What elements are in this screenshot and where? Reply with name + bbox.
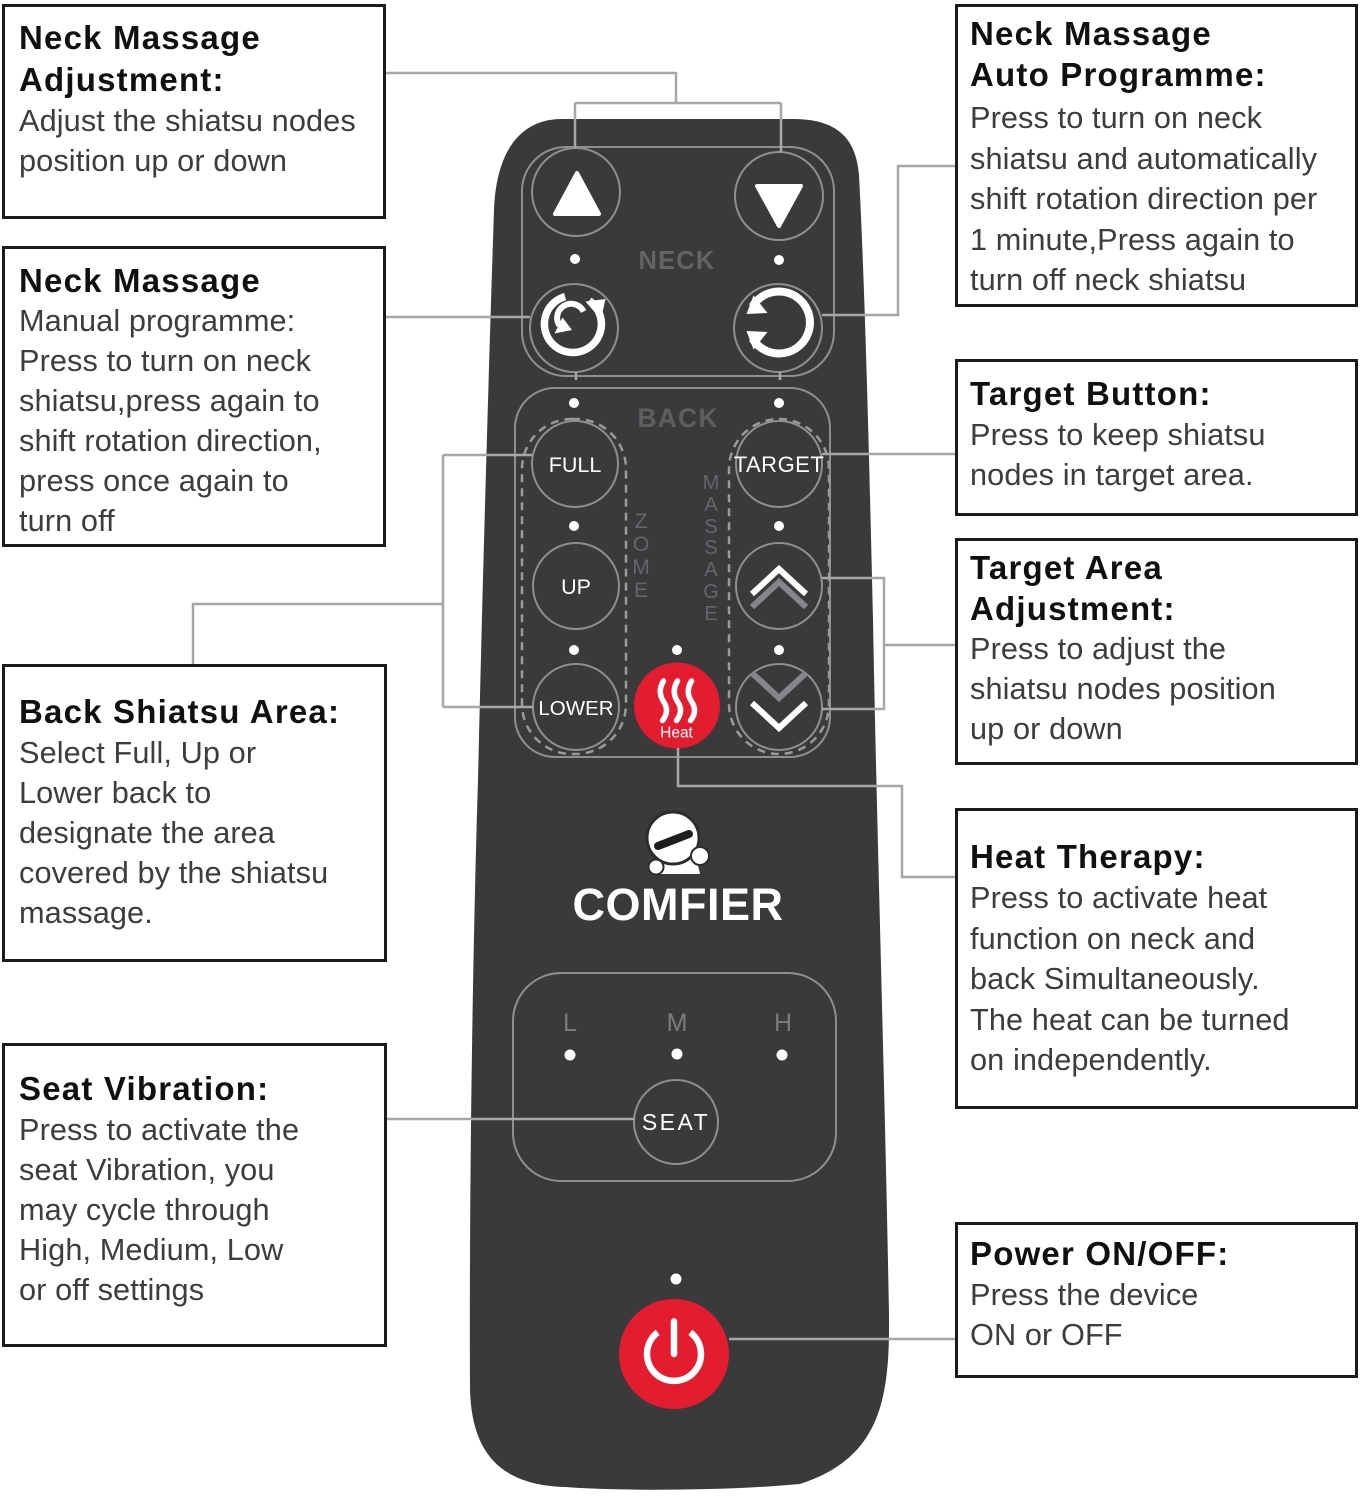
svg-text:L: L	[563, 1009, 577, 1037]
svg-text:E: E	[704, 603, 717, 625]
svg-text:A: A	[704, 559, 718, 581]
svg-text:M: M	[703, 472, 720, 494]
svg-text:G: G	[703, 581, 719, 603]
svg-text:M: M	[667, 1009, 688, 1037]
svg-text:TARGET: TARGET	[734, 452, 825, 477]
svg-text:E: E	[634, 579, 648, 602]
svg-text:Heat: Heat	[660, 725, 693, 742]
svg-text:COMFIER: COMFIER	[573, 879, 784, 930]
svg-text:S: S	[704, 516, 717, 538]
svg-text:BACK: BACK	[637, 403, 718, 433]
svg-text:SEAT: SEAT	[642, 1109, 710, 1135]
svg-text:S: S	[704, 537, 717, 559]
svg-text:H: H	[774, 1009, 792, 1037]
svg-text:A: A	[704, 494, 718, 516]
svg-text:NECK: NECK	[638, 247, 715, 275]
svg-text:Z: Z	[635, 510, 648, 533]
svg-text:O: O	[633, 533, 649, 556]
svg-text:M: M	[632, 556, 650, 579]
svg-text:UP: UP	[561, 575, 591, 599]
svg-text:FULL: FULL	[549, 453, 602, 477]
svg-text:LOWER: LOWER	[538, 697, 613, 720]
